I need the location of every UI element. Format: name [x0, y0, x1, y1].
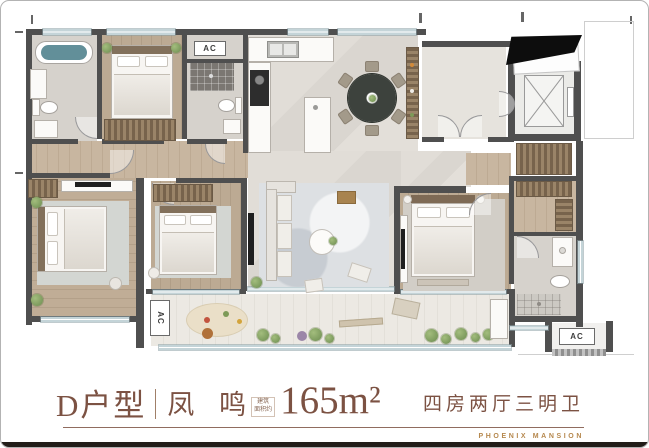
ottoman: [109, 277, 122, 290]
series-name: 凤 鸣: [167, 383, 255, 422]
wardrobe: [555, 199, 573, 231]
window: [578, 241, 583, 283]
tv: [248, 213, 254, 265]
ac-balcony-text: AC: [156, 311, 164, 325]
plant: [425, 329, 438, 342]
dimension-tick: [521, 12, 524, 22]
wall: [26, 139, 78, 144]
wall: [422, 137, 444, 142]
area-note-line2: 面积约: [254, 407, 272, 415]
neighbor-outline: [584, 21, 634, 139]
floorplan-card: AC: [0, 0, 649, 448]
ac-closet-text: AC: [203, 45, 217, 53]
window: [107, 29, 175, 35]
wall: [182, 35, 187, 139]
toy: [204, 317, 210, 323]
dresser: [104, 119, 176, 141]
window: [43, 29, 91, 35]
table-plant: [369, 95, 376, 102]
wall: [576, 141, 583, 327]
armchair: [304, 278, 324, 293]
storage-cabinet: [490, 299, 508, 339]
elevator-car: [524, 75, 564, 127]
sink-basin: [559, 247, 566, 254]
sink-counter: [30, 69, 47, 99]
wardrobe: [28, 179, 58, 198]
window: [41, 317, 129, 322]
ac-platform-grille: [552, 349, 606, 356]
bed: [111, 45, 173, 119]
wall: [97, 35, 102, 139]
window: [510, 326, 548, 330]
plant: [309, 328, 322, 341]
toy: [223, 311, 229, 317]
decor-item: [410, 89, 414, 93]
plant: [325, 334, 334, 343]
wall: [241, 178, 247, 291]
tv: [401, 229, 405, 269]
card-bottom-edge: [1, 442, 648, 447]
wall: [509, 234, 514, 284]
toy: [237, 319, 242, 324]
dining-chair: [365, 125, 379, 136]
plant: [251, 277, 262, 288]
plant-purple: [297, 331, 307, 341]
decor-item: [410, 63, 414, 67]
plant: [271, 334, 280, 343]
floor-corridor: [401, 151, 471, 187]
toilet: [218, 99, 235, 112]
area-note: 建筑 面积约: [251, 397, 275, 417]
island-faucet: [313, 105, 318, 110]
shower-drain: [537, 302, 541, 306]
wardrobe: [153, 184, 213, 202]
wall: [422, 41, 514, 47]
entry-cabinet: [516, 143, 572, 175]
wall: [509, 316, 576, 322]
brand-name: PHOENIX MANSION: [478, 433, 584, 440]
toilet: [40, 101, 58, 114]
unit-label: D户型: [56, 380, 146, 425]
ac-balcony-label: AC: [150, 300, 170, 336]
dimension-tick: [31, 15, 33, 24]
sofa-cushion: [277, 195, 292, 221]
caption-rule: [63, 427, 584, 428]
floor-corridor-master: [466, 153, 511, 185]
balcony-railing: [159, 345, 511, 350]
side-table: [337, 191, 356, 204]
floorplan: AC: [1, 1, 649, 371]
nightstand: [403, 195, 412, 204]
sink: [223, 119, 241, 134]
wall: [26, 173, 110, 178]
area-note-line1: 建筑: [254, 399, 272, 407]
window: [288, 29, 328, 35]
bed: [37, 206, 107, 272]
sofa-back: [266, 189, 277, 281]
plant: [441, 334, 451, 344]
elevator-panel: [567, 87, 574, 117]
toilet-tank: [235, 97, 242, 114]
sofa-cushion: [277, 223, 292, 249]
plant: [455, 328, 467, 340]
plant: [171, 43, 181, 53]
plant: [257, 329, 269, 341]
dining-chair: [365, 61, 379, 72]
bed: [411, 203, 475, 277]
wall: [136, 178, 144, 294]
cooktop: [250, 70, 269, 106]
flower-pot: [202, 328, 213, 339]
wall: [509, 176, 514, 234]
shower-drain: [209, 74, 213, 78]
ac-closet-label: AC: [194, 41, 226, 56]
window: [153, 290, 239, 294]
area-value: 165m²: [280, 378, 381, 423]
dimension-tick: [15, 172, 23, 174]
wall: [176, 178, 246, 183]
layout-description: 四房两厅三明卫: [423, 389, 584, 416]
toilet: [550, 275, 570, 288]
caption-left: D户型 凤 鸣 建筑 面积约 165m²: [56, 380, 381, 425]
window: [338, 29, 416, 35]
plant: [102, 43, 112, 53]
wall: [606, 321, 613, 352]
sofa-cushion: [277, 251, 292, 277]
ac-platform-label: AC: [559, 328, 595, 345]
vanity: [34, 120, 58, 138]
stool: [148, 267, 160, 279]
ac-platform-text: AC: [570, 333, 584, 341]
tv: [75, 182, 111, 187]
display-cabinet: [406, 47, 419, 139]
toilet-tank: [32, 99, 40, 116]
decor-item: [410, 113, 414, 117]
caption-divider: [155, 389, 156, 419]
wardrobe: [516, 181, 572, 197]
wall: [394, 186, 466, 193]
elevator-x-icon: [525, 76, 563, 126]
plant: [31, 197, 42, 208]
kitchen-sink-basin: [270, 44, 282, 55]
bed: [159, 205, 217, 275]
card-frame: AC: [0, 0, 649, 448]
headboard: [411, 195, 475, 203]
table-plant: [329, 237, 337, 245]
dimension-tick: [15, 31, 23, 33]
dimension-tick: [419, 13, 422, 23]
bathtub-water: [41, 45, 87, 60]
kitchen-sink-basin: [284, 44, 296, 55]
bed-bench: [417, 279, 469, 286]
plant: [471, 333, 480, 342]
plant: [31, 294, 43, 306]
